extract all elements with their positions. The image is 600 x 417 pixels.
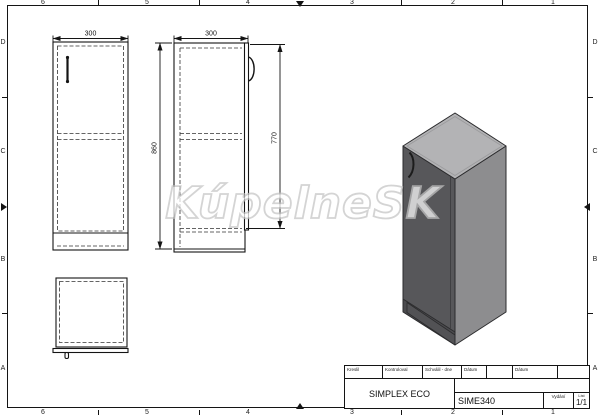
edition-label: Vydání [543,393,573,408]
dimension-front-width: 300 [85,31,97,38]
door-handle-icon [65,353,69,359]
empty-cell [487,366,513,378]
empty-cell [558,366,589,378]
front-view [53,42,128,250]
cad-drawing-canvas: 300 300 860 770 [0,0,600,417]
sheet-cell: List 1/1 [573,393,589,408]
drawn-by-label: Kreslil [345,366,383,378]
dimension-total-height: 860 [152,142,159,154]
door-handle-icon [249,57,255,81]
title-block: Kreslil Kontroloval Schválil - dne Dátum… [344,365,590,409]
date-label: Dátum [462,366,487,378]
product-name: SIMPLEX ECO [345,379,455,408]
isometric-view [403,113,506,345]
empty-cell [455,379,589,392]
top-view [53,278,128,359]
sheet-number: 1/1 [574,398,589,407]
drawing-sheet: 6 5 4 3 2 1 6 5 4 3 2 1 D C B A D C B A [0,0,600,417]
side-view [174,43,254,252]
title-block-header-row: Kreslil Kontroloval Schválil - dne Dátum… [345,366,589,378]
date-label: Dátum [513,366,558,378]
dimension-side-depth: 300 [205,31,217,38]
checked-by-label: Kontroloval [383,366,423,378]
approved-label: Schválil - dne [423,366,462,378]
product-code: SIME340 [455,393,543,408]
dimension-door-height: 770 [272,132,279,144]
